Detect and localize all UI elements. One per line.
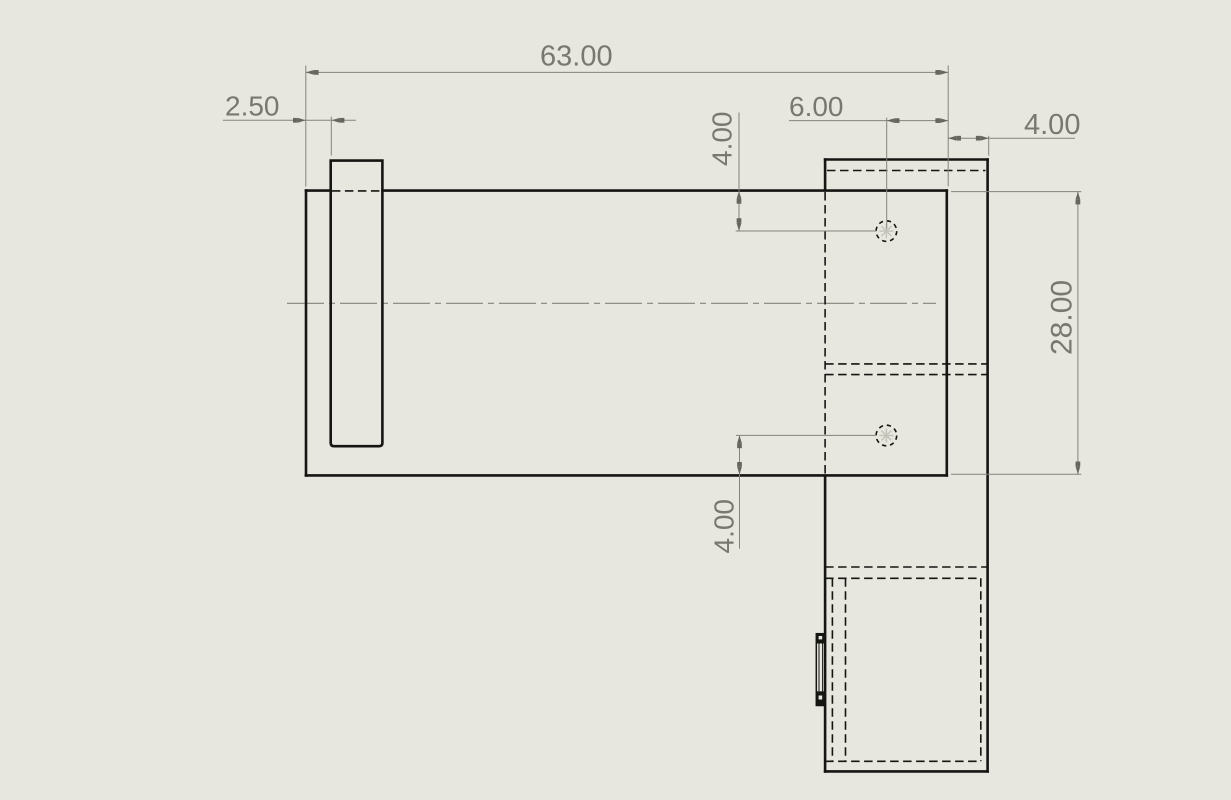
svg-text:63.00: 63.00 — [540, 41, 613, 73]
svg-text:6.00: 6.00 — [789, 91, 844, 122]
svg-text:28.00: 28.00 — [1046, 280, 1079, 355]
svg-text:2.50: 2.50 — [225, 91, 280, 122]
svg-text:4.00: 4.00 — [709, 499, 740, 554]
svg-text:4.00: 4.00 — [707, 112, 738, 167]
svg-text:4.00: 4.00 — [1024, 109, 1080, 141]
